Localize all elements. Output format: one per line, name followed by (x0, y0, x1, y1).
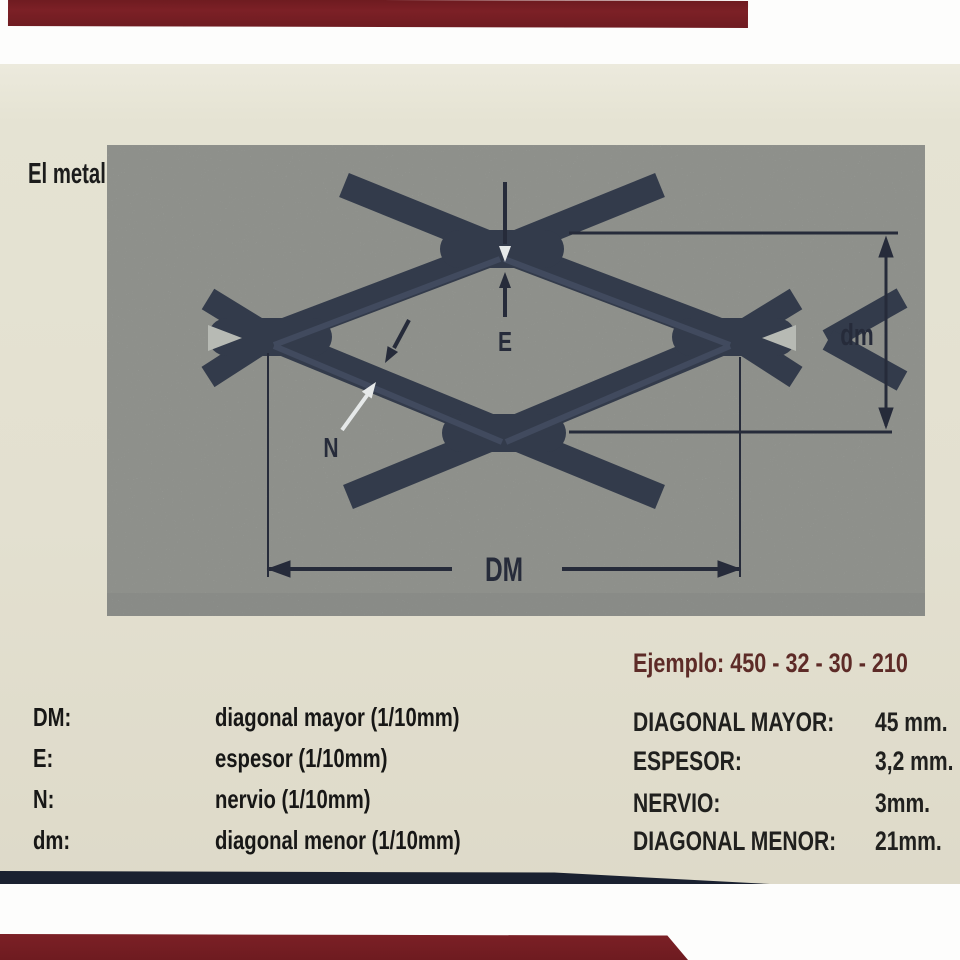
example-label: NERVIO: (633, 788, 720, 819)
example-value: 45 mm. (875, 707, 948, 738)
e-label: E (498, 327, 512, 358)
definitions-list: DM:diagonal mayor (1/10mm) E:espesor (1/… (33, 697, 530, 861)
mesh-diagram-figure: DM dm E (107, 145, 925, 616)
dm-major-label: DM (485, 551, 523, 589)
paper-bottom-dark-edge (0, 871, 770, 884)
expanded-metal-diagram-panel: DM dm E (107, 145, 925, 616)
definition-desc: nervio (1/10mm) (215, 779, 371, 820)
definition-desc: diagonal mayor (1/10mm) (215, 697, 460, 738)
bottom-binding-red-bar (0, 934, 688, 960)
definition-row-e: E:espesor (1/10mm) (33, 738, 530, 779)
definition-abbr: DM: (33, 697, 175, 738)
example-label: DIAGONAL MAYOR: (633, 707, 834, 738)
catalog-paper-sheet: El metal expandido está definido mediant… (0, 64, 960, 884)
scanned-page: El metal expandido está definido mediant… (0, 0, 960, 960)
example-value: 3mm. (875, 788, 930, 819)
definition-row-n: N:nervio (1/10mm) (33, 779, 530, 820)
panel-bottom-shadow (107, 593, 925, 616)
definition-desc: diagonal menor (1/10mm) (215, 820, 461, 861)
example-label: DIAGONAL MENOR: (633, 826, 836, 857)
definition-abbr: N: (33, 779, 175, 820)
definition-row-dm-minor: dm:diagonal menor (1/10mm) (33, 820, 530, 861)
n-label: N (323, 433, 338, 464)
example-value: 3,2 mm. (875, 746, 953, 777)
example-code-heading: Ejemplo: 450 - 32 - 30 - 210 (633, 648, 908, 679)
definition-abbr: E: (33, 738, 175, 779)
definition-abbr: dm: (33, 820, 175, 861)
example-label: ESPESOR: (633, 746, 742, 777)
top-binding-red-bar (8, 0, 748, 28)
example-value: 21mm. (875, 826, 942, 857)
dm-minor-label: dm (840, 317, 873, 351)
definition-row-dm: DM:diagonal mayor (1/10mm) (33, 697, 530, 738)
panel-grain-texture (107, 145, 925, 616)
definition-desc: espesor (1/10mm) (215, 738, 387, 779)
